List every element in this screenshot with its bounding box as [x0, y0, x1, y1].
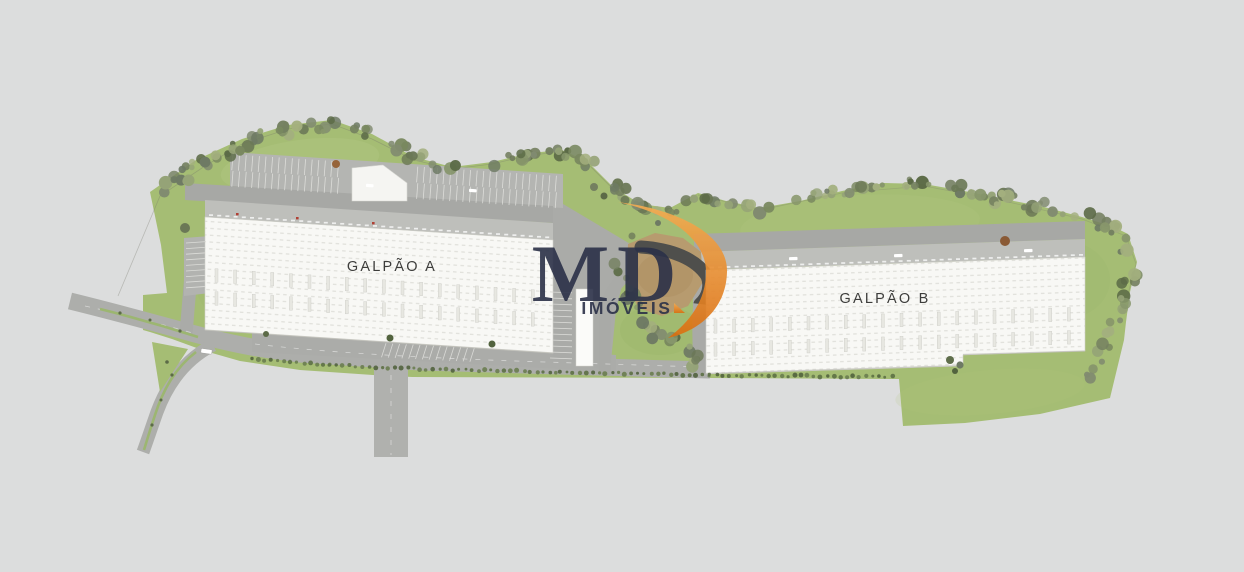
logo-subtitle-text: IMÓVEIS: [581, 297, 672, 318]
docked-truck-cab: [296, 217, 299, 219]
site-plan-canvas: GALPÃO A GALPÃO B: [0, 0, 1244, 572]
truck: [894, 254, 903, 257]
warehouse-a-label: GALPÃO A: [347, 258, 437, 275]
warehouse-b-label: GALPÃO B: [840, 290, 931, 307]
red-shrub: [332, 160, 340, 168]
site-plan-image: GALPÃO A GALPÃO B: [0, 0, 1244, 572]
truck: [1024, 249, 1033, 252]
docked-truck-cab: [236, 213, 239, 215]
warehouse-a: GALPÃO A: [205, 217, 553, 353]
van: [469, 189, 477, 193]
van: [366, 184, 374, 188]
docked-truck-cab: [372, 222, 375, 224]
truck: [789, 257, 798, 260]
red-shrub: [1000, 236, 1010, 246]
